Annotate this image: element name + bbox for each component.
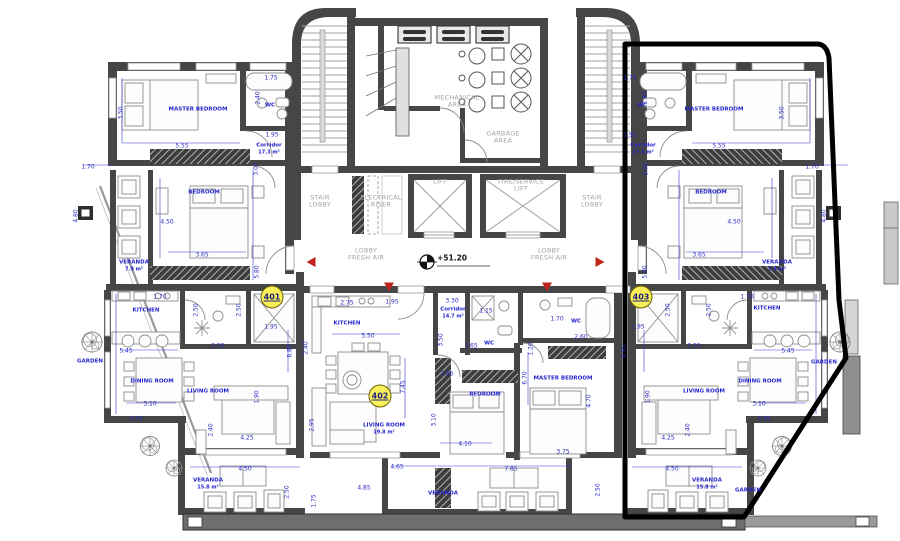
dimension-label: 1.75 (311, 494, 318, 507)
room-label: KITCHEN (132, 308, 159, 315)
room-label: VERANDA15.8 m² (193, 477, 223, 490)
room-label: LIVING ROOM (187, 389, 229, 396)
annotation-layer: +51.20 MECHANICAL AREAGARBAGE AREASTAIR … (0, 0, 900, 541)
zone-label: FIRE/SERVICE LIFT (493, 179, 549, 194)
dimension-label: 1.15 (479, 308, 492, 315)
dimension-label: 3.75 (556, 449, 569, 456)
room-label: GARDEN (811, 360, 837, 367)
room-label: DINING ROOM (738, 379, 781, 386)
dimension-label: 3.65 (195, 252, 208, 259)
dimension-label: 5.80 (642, 265, 649, 278)
dimension-label: 2.50 (595, 483, 602, 496)
dimension-label: 1.65 (464, 343, 477, 350)
dimension-label: 3.50 (118, 106, 125, 119)
dimension-label: 2.95 (309, 418, 316, 431)
zone-label: LOBBY FRESH AIR (526, 248, 572, 263)
dimension-label: 1.70 (550, 316, 563, 323)
room-label: BEDROOM (188, 190, 220, 197)
room-label: KITCHEN (753, 306, 780, 313)
zone-label: LIFT (420, 178, 460, 185)
entrance-arrow-icon (307, 257, 316, 267)
dimension-label: 4.70 (586, 394, 593, 407)
dimension-label: 5.80 (254, 265, 261, 278)
dimension-label: 1.70 (740, 294, 753, 301)
room-label: GARDEN (735, 488, 761, 495)
dimension-label: 1.75 (264, 75, 277, 82)
dimension-label: 6.70 (522, 371, 529, 384)
room-label: DINING ROOM (130, 379, 173, 386)
dimension-label: 4.50 (727, 219, 740, 226)
zone-label: ELECTRICAL RISER (355, 195, 407, 210)
unit-number-badge: 401 (261, 286, 284, 309)
dimension-label: 1.95 (265, 132, 278, 139)
zone-label: LOBBY FRESH AIR (343, 248, 389, 263)
dimension-label: 4.50 (160, 219, 173, 226)
zone-label: MECHANICAL AREA (426, 95, 488, 110)
dimension-label: 4.25 (240, 435, 253, 442)
dimension-label: 7.45 (400, 380, 407, 393)
dimension-label: 2.40 (642, 91, 649, 104)
room-label: WC (571, 319, 581, 326)
dimension-label: 1.95 (264, 324, 277, 331)
room-label: MASTER BEDROOM (169, 107, 228, 114)
dimension-label: 2.50 (193, 303, 200, 316)
dimension-label: 3.50 (779, 106, 786, 119)
room-label: BEDROOM (695, 190, 727, 197)
room-label: VERANDA (428, 491, 458, 498)
dimension-label: 4.80 (73, 209, 80, 222)
entrance-arrow-icon (596, 257, 605, 267)
room-label: GARDEN (77, 359, 103, 366)
unit-number-badge: 403 (630, 286, 653, 309)
dimension-label: 5.55 (175, 143, 188, 150)
dimension-label: 3.10 (752, 401, 765, 408)
dimension-label: 2.50 (284, 485, 291, 498)
dimension-label: 4.50 (665, 466, 678, 473)
entrance-arrow-icon (384, 283, 394, 292)
dimension-label: 2.50 (236, 303, 243, 316)
dimension-label: 1.70 (805, 164, 818, 171)
dimension-label: 4.85 (357, 485, 370, 492)
room-label: VERANDA7.9 m² (762, 259, 792, 272)
dimension-label: 3.30 (445, 298, 458, 305)
dimension-label: 3.50 (438, 333, 445, 346)
dimension-label: 1.70 (153, 294, 166, 301)
room-label: Corridor14.7 m² (440, 306, 466, 319)
entrance-arrow-icon (542, 283, 552, 292)
zone-label: STAIR LOBBY (575, 195, 609, 210)
dimension-label: 8.85 (287, 344, 294, 357)
floor-plan-canvas: +51.20 MECHANICAL AREAGARBAGE AREASTAIR … (0, 0, 900, 541)
dimension-label: 5.45 (119, 348, 132, 355)
dimension-label: 5.50 (361, 333, 374, 340)
dimension-label: 8.85 (621, 344, 628, 357)
dimension-label: 7.85 (504, 466, 517, 473)
room-label: MASTER BEDROOM (534, 376, 593, 383)
dimension-label: 5.55 (712, 143, 725, 150)
dimension-label: 4.25 (661, 435, 674, 442)
room-label: BEDROOM (469, 392, 501, 399)
dimension-label: 2.75 (340, 300, 353, 307)
dimension-label: 3.10 (143, 401, 156, 408)
dimension-label: 1.95 (385, 299, 398, 306)
dimension-label: 1.20 (528, 342, 535, 355)
dimension-label: 4.50 (238, 466, 251, 473)
dimension-label: 4.10 (458, 441, 471, 448)
dimension-label: 5.45 (781, 348, 794, 355)
dimension-label: 2.40 (685, 423, 692, 436)
dimension-label: 3.65 (692, 252, 705, 259)
zone-label: STAIR LOBBY (303, 195, 337, 210)
dimension-label: 2.50 (706, 303, 713, 316)
unit-number-badge: 402 (369, 385, 392, 408)
room-label: Corridor17.3 m² (256, 142, 282, 155)
dimension-label: 1.95 (623, 132, 636, 139)
dimension-label: 2.40 (208, 423, 215, 436)
dimension-label: 3.35 (757, 416, 770, 423)
dimension-label: 2.55 (687, 343, 700, 350)
dimension-label: 2.60 (574, 334, 587, 341)
room-label: VERANDA7.9 m² (119, 259, 149, 272)
dimension-label: 2.40 (255, 91, 262, 104)
room-label: LIVING ROOM (683, 389, 725, 396)
dimension-label: 1.85 (440, 371, 453, 378)
dimension-label: 3.00 (253, 162, 260, 175)
elevation-label: +51.20 (437, 254, 467, 263)
dimension-label: 1.90 (645, 390, 652, 403)
room-label: VERANDA15.8 m² (692, 477, 722, 490)
dimension-label: 3.00 (643, 162, 650, 175)
dimension-label: 1.90 (254, 390, 261, 403)
room-label: KITCHEN (333, 321, 360, 328)
dimension-label: 2.55 (211, 343, 224, 350)
dimension-label: 4.80 (821, 209, 828, 222)
dimension-label: 1.70 (81, 164, 94, 171)
dimension-label: 2.50 (665, 303, 672, 316)
dimension-label: 2.40 (303, 341, 310, 354)
room-label: WC (484, 341, 494, 348)
room-label: WC (265, 103, 275, 110)
room-label: LIVING ROOM19.8 m² (363, 422, 405, 435)
room-label: Corridor17.3 m² (630, 142, 656, 155)
dimension-label: 1.95 (631, 324, 644, 331)
zone-label: GARBAGE AREA (477, 131, 529, 146)
dimension-label: 3.10 (431, 413, 438, 426)
room-label: MASTER BEDROOM (685, 107, 744, 114)
dimension-label: 3.35 (129, 416, 142, 423)
dimension-label: 4.65 (390, 464, 403, 471)
dimension-label: 1.75 (623, 75, 636, 82)
